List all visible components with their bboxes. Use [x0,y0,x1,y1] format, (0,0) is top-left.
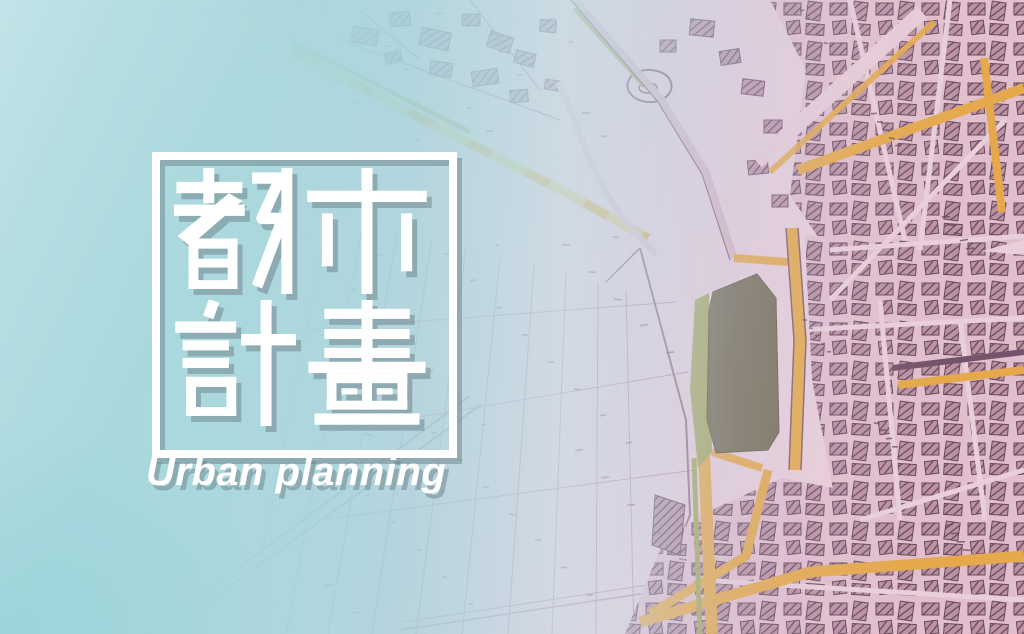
subtitle-english: Urban planning [146,450,626,495]
title-char-hua [306,300,428,426]
title-char-shi [306,168,428,294]
title-box-frame [152,152,457,458]
title-char-to [174,168,296,294]
title-char-kei [174,300,296,426]
urban-planning-hero-banner: 都市計畫 [0,0,1024,634]
